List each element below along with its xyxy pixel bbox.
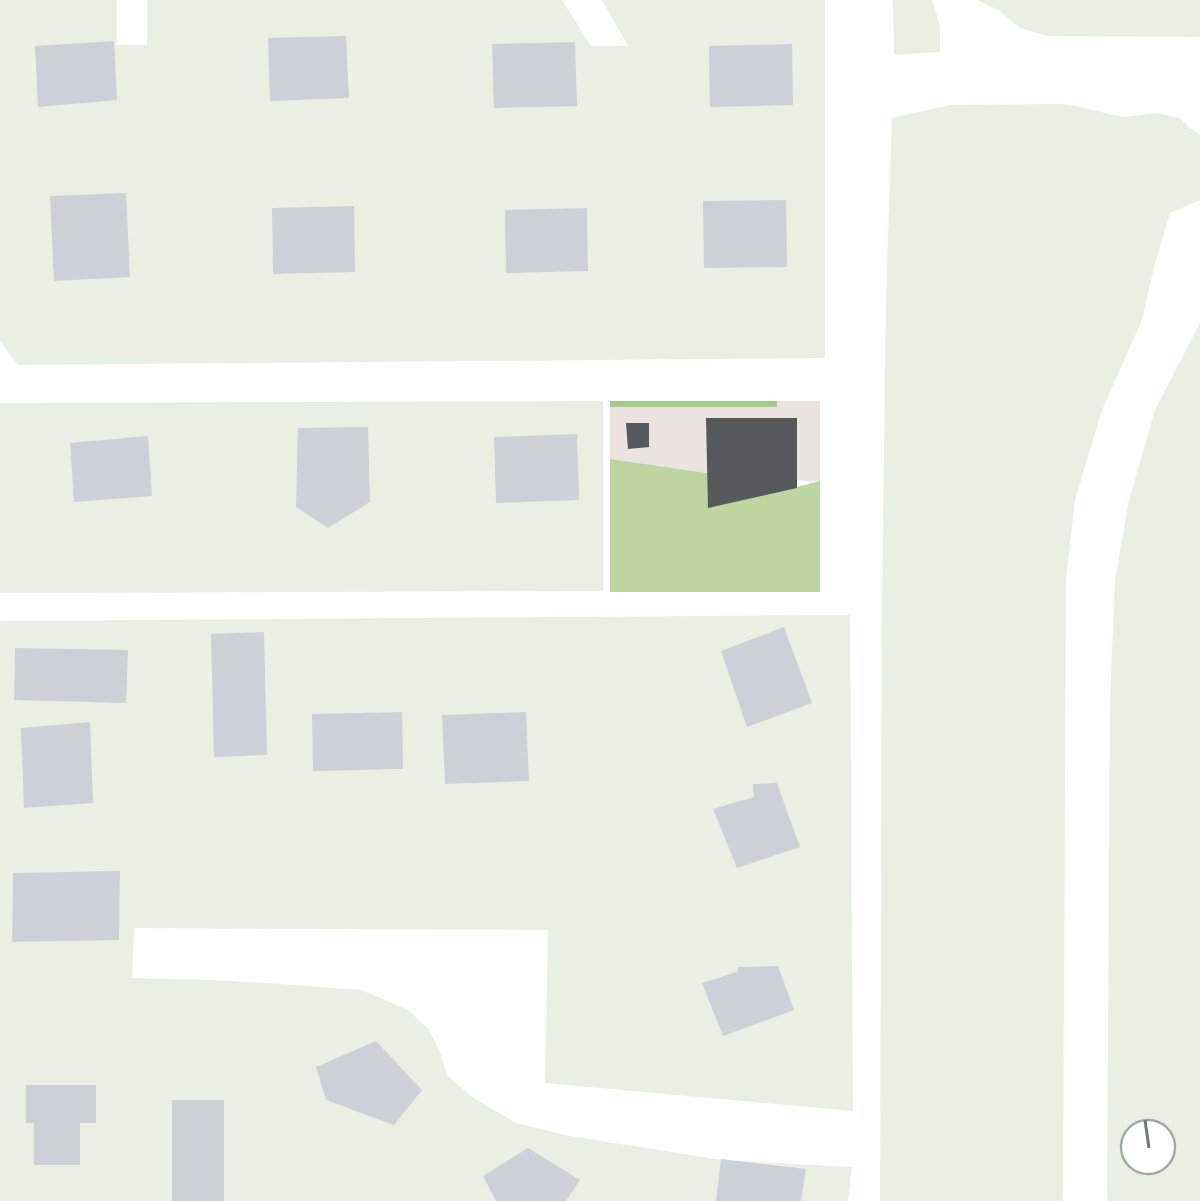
north-arrow-icon (1121, 1120, 1175, 1174)
building-west-1 (70, 436, 152, 502)
site-plan-map (0, 0, 1200, 1201)
building-south-6 (12, 871, 120, 942)
building-south-3 (21, 722, 93, 808)
city-block-east-edge (1107, 323, 1200, 1201)
building-nw-r1-3 (492, 42, 577, 108)
city-blocks-layer (0, 0, 1200, 1201)
building-south-1 (14, 648, 128, 703)
verge-top-right (977, 0, 1200, 37)
building-nw-r1-2 (268, 36, 349, 101)
building-nw-r1-1 (35, 41, 117, 107)
city-block-northwest (0, 0, 825, 365)
building-nw-r1-4 (709, 44, 793, 107)
building-sw-2 (172, 1100, 224, 1201)
verge-top-center (893, 0, 940, 55)
building-south-5 (442, 712, 529, 784)
site-hedge-strip (610, 401, 777, 407)
city-block-south (0, 615, 853, 1201)
building-south-4 (312, 712, 403, 771)
building-west-3 (494, 434, 579, 503)
building-south-2 (211, 632, 267, 757)
building-nw-r2-2 (272, 206, 355, 274)
site-plan-page (0, 0, 1200, 1201)
building-nw-r2-4 (703, 200, 787, 268)
building-nw-r2-3 (505, 208, 588, 273)
building-nw-r2-1 (50, 193, 130, 281)
site-annex-building (626, 423, 649, 449)
